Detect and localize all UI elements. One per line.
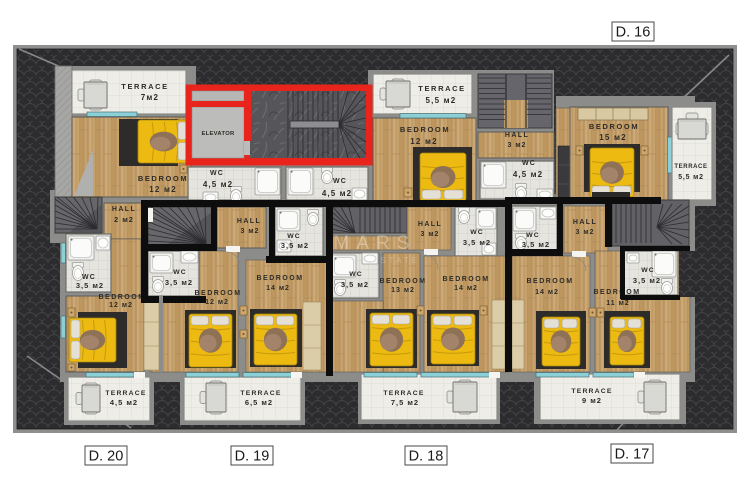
svg-text:2 м2: 2 м2	[114, 215, 134, 224]
svg-text:12 м2: 12 м2	[410, 137, 438, 146]
svg-text:D. 19: D. 19	[235, 449, 270, 465]
svg-text:HALL: HALL	[505, 132, 529, 139]
svg-text:WC: WC	[173, 269, 187, 276]
svg-text:12 м2: 12 м2	[149, 185, 177, 194]
svg-text:3,5 м2: 3,5 м2	[522, 240, 550, 249]
svg-text:D. 20: D. 20	[89, 449, 124, 465]
svg-text:ELEVATOR: ELEVATOR	[202, 131, 236, 137]
svg-text:5,5 м2: 5,5 м2	[678, 174, 704, 181]
svg-text:BEDROOM: BEDROOM	[194, 290, 241, 297]
svg-text:4,5 м2: 4,5 м2	[322, 189, 352, 198]
svg-text:HALL: HALL	[237, 218, 261, 225]
svg-text:7м2: 7м2	[141, 93, 159, 102]
svg-text:WC: WC	[470, 229, 484, 236]
svg-text:3,5 м2: 3,5 м2	[633, 276, 661, 285]
svg-text:4,5 м2: 4,5 м2	[110, 398, 138, 407]
svg-text:WC: WC	[333, 178, 347, 185]
svg-text:TERRACE: TERRACE	[240, 390, 281, 397]
svg-text:BEDROOM: BEDROOM	[442, 276, 489, 283]
svg-text:BEDROOM: BEDROOM	[256, 275, 303, 282]
svg-text:BEDROOM: BEDROOM	[138, 174, 188, 183]
svg-text:15 м2: 15 м2	[599, 133, 627, 142]
svg-text:14 м2: 14 м2	[535, 289, 559, 296]
svg-text:3,5 м2: 3,5 м2	[76, 281, 104, 290]
svg-text:3 м2: 3 м2	[421, 231, 440, 238]
svg-text:TERRACE: TERRACE	[383, 390, 424, 397]
svg-text:9 м2: 9 м2	[582, 396, 602, 405]
svg-text:TERRACE: TERRACE	[571, 388, 612, 395]
svg-text:ESTATE: ESTATE	[372, 256, 420, 265]
svg-text:BEDROOM: BEDROOM	[400, 125, 450, 134]
svg-text:BEDROOM: BEDROOM	[589, 122, 639, 131]
svg-text:TERRACE: TERRACE	[105, 390, 146, 397]
svg-text:6,5 м2: 6,5 м2	[245, 398, 273, 407]
svg-text:WC: WC	[641, 267, 655, 274]
svg-text:WC: WC	[287, 233, 301, 240]
svg-text:3,5 м2: 3,5 м2	[341, 280, 369, 289]
svg-text:4,5 м2: 4,5 м2	[203, 180, 233, 189]
svg-text:MARS: MARS	[334, 233, 417, 254]
svg-text:HALL: HALL	[112, 206, 136, 213]
svg-text:3 м2: 3 м2	[241, 228, 260, 235]
svg-text:WC: WC	[82, 274, 96, 281]
svg-text:WC: WC	[526, 232, 540, 239]
svg-text:TERRACE: TERRACE	[674, 164, 707, 170]
svg-text:3 м2: 3 м2	[508, 142, 527, 149]
svg-text:WC: WC	[210, 170, 224, 177]
svg-text:HALL: HALL	[418, 221, 442, 228]
svg-text:WC: WC	[522, 160, 536, 167]
svg-text:7,5 м2: 7,5 м2	[391, 398, 419, 407]
svg-text:14 м2: 14 м2	[454, 285, 478, 292]
svg-text:D. 17: D. 17	[615, 447, 650, 463]
svg-text:D. 16: D. 16	[616, 25, 651, 41]
svg-text:5,5 м2: 5,5 м2	[426, 96, 457, 105]
svg-text:13 м2: 13 м2	[391, 287, 415, 294]
svg-text:11 м2: 11 м2	[606, 300, 629, 307]
svg-text:12 м2: 12 м2	[205, 299, 229, 306]
svg-text:TERRACE: TERRACE	[418, 84, 465, 93]
svg-text:14 м2: 14 м2	[266, 285, 290, 292]
svg-text:12 м2: 12 м2	[109, 302, 133, 309]
svg-text:3,5 м2: 3,5 м2	[165, 278, 193, 287]
svg-text:BEDROOM: BEDROOM	[526, 278, 573, 285]
svg-text:3,5 м2: 3,5 м2	[463, 238, 491, 247]
svg-text:4,5 м2: 4,5 м2	[513, 170, 543, 179]
svg-text:3 м2: 3 м2	[576, 229, 595, 236]
svg-text:WC: WC	[349, 271, 363, 278]
svg-text:BEDROOM: BEDROOM	[379, 278, 426, 285]
svg-text:TERRACE: TERRACE	[121, 82, 168, 91]
svg-text:3,5 м2: 3,5 м2	[281, 241, 309, 250]
svg-text:HALL: HALL	[573, 219, 597, 226]
svg-text:BEDROOM: BEDROOM	[98, 294, 145, 301]
svg-text:BEDROOM: BEDROOM	[593, 289, 640, 296]
svg-text:D. 18: D. 18	[409, 449, 444, 465]
